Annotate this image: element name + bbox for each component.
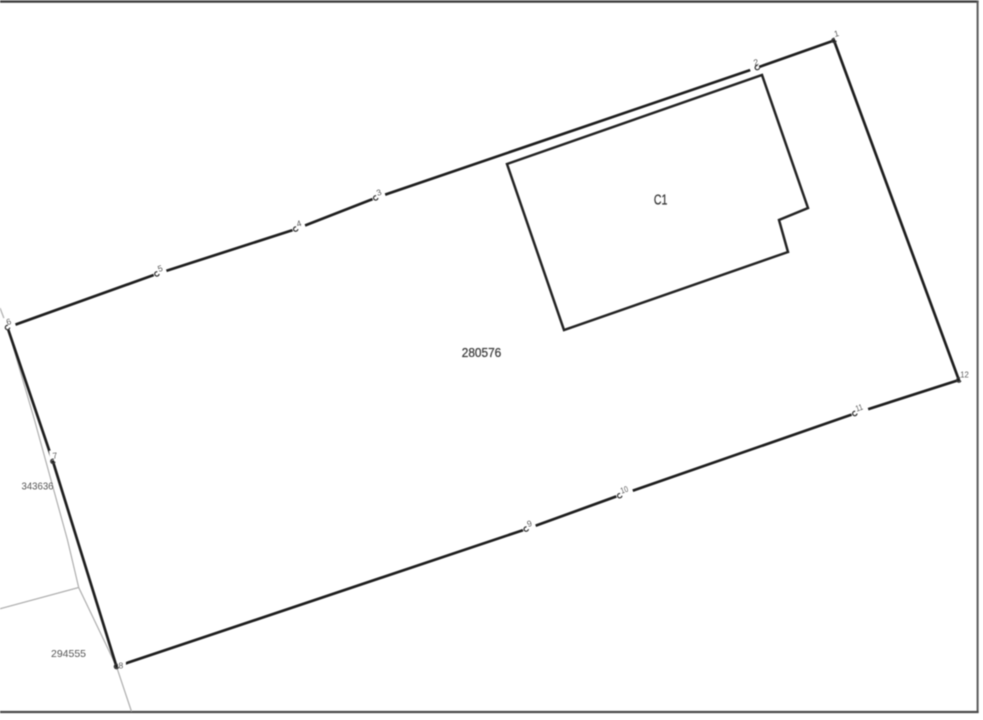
svg-text:C1: C1 [654,191,668,208]
svg-text:8: 8 [119,661,124,671]
svg-text:280576: 280576 [462,346,502,360]
svg-text:343636: 343636 [22,481,54,492]
svg-text:294555: 294555 [51,648,86,660]
svg-text:12: 12 [960,369,969,379]
